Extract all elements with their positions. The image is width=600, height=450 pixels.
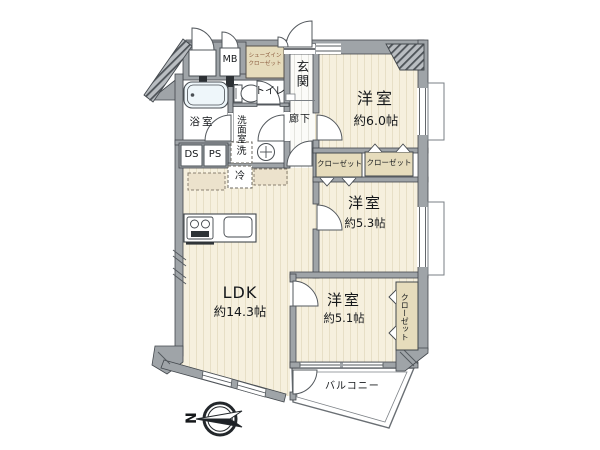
hallway-label: 廊下 — [285, 114, 315, 126]
western6-room-label: 洋室 — [344, 90, 408, 108]
heater-door-arc — [192, 28, 214, 50]
washroom-label: 洗面室 — [234, 107, 245, 151]
western6-size-label: 約6.0帖 — [340, 114, 412, 128]
pipe-space-label: PS — [204, 149, 226, 161]
closet-a-label: クローゼット — [317, 160, 361, 169]
toilet-label: トイレ — [252, 86, 288, 98]
duct-space-label: DS — [181, 149, 202, 161]
washer-label: 洗 — [232, 146, 251, 158]
compass-icon — [196, 403, 242, 435]
kitchen-sink-icon — [224, 217, 252, 237]
ldk-room-label: LDK — [204, 284, 276, 302]
closet-51-label: クローゼット — [400, 287, 409, 347]
bathroom-label: 浴室 — [181, 116, 223, 128]
washroom-door-arc — [258, 115, 284, 141]
water-heater-box — [189, 50, 216, 76]
entrance-door-child-arc — [278, 37, 288, 47]
window-bay-west53 — [428, 202, 444, 275]
refrigerator-label: 冷 — [229, 171, 251, 183]
sink-icon — [258, 144, 275, 161]
window-bay-west6 — [428, 83, 444, 140]
closet-b-label: クローゼット — [366, 159, 412, 168]
western53-room-label: 洋室 — [333, 195, 397, 212]
western51-size-label: 約5.1帖 — [312, 312, 376, 325]
western53-size-label: 約5.3帖 — [331, 217, 399, 230]
meter-box-door-arc — [222, 32, 238, 48]
shoe-closet-label-line2: クローゼット — [246, 61, 284, 67]
entrance-label: 玄関 — [294, 52, 308, 96]
meter-box-label: MB — [220, 55, 240, 66]
counter-space-b — [254, 169, 287, 185]
counter-space-a — [188, 173, 225, 190]
kitchen-counter-icon — [184, 214, 256, 245]
balcony-label: バルコニー — [325, 381, 377, 393]
bathtub-icon — [184, 82, 228, 108]
shoe-closet-label-line1: シューズイン — [246, 53, 284, 59]
compass-north-label: N — [184, 410, 200, 426]
floor-plan: LDK 約14.3帖 洋室 約6.0帖 洋室 約5.3帖 洋室 約5.1帖 浴室… — [0, 0, 600, 450]
entrance-door-arc — [286, 21, 312, 47]
ldk-size-label: 約14.3帖 — [196, 305, 284, 319]
western51-room-label: 洋室 — [312, 292, 376, 309]
